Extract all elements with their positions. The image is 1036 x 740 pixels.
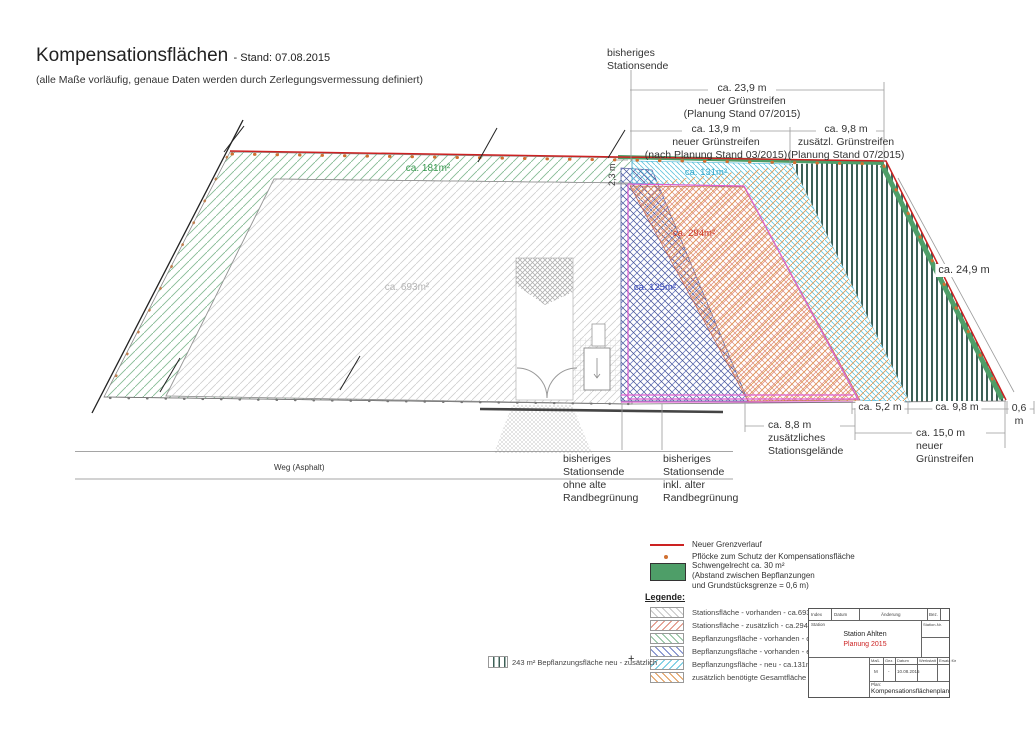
- tb-plan-label: Plan:: [871, 682, 881, 687]
- legend-item: Stationsfläche - vorhanden - ca.693m²: [692, 608, 819, 618]
- dim-9-8-bottom: ca. 9,8 m: [932, 401, 981, 414]
- dim-15-0: ca. 15,0 m neuer Grünstreifen: [916, 427, 974, 466]
- tb-header-bez: Bez.: [929, 612, 938, 617]
- label-station-end-top: bisheriges Stationsende: [607, 47, 668, 73]
- area-label-693: ca. 693m²: [385, 281, 429, 294]
- tb-row-value-datum: 10.08.2015: [897, 669, 920, 674]
- compensation-plan-page: Kompensationsflächen - Stand: 07.08.2015…: [0, 0, 1036, 740]
- legend-swatch-blue-hatch: [650, 646, 684, 657]
- tb-row-header-mass: Maß.: [871, 658, 880, 663]
- area-label-181: ca. 181m²: [406, 162, 450, 175]
- legend-schwengelrecht-label: Schwengelrecht ca. 30 m² (Abstand zwisch…: [692, 561, 815, 591]
- dim-13-9: ca. 13,9 m neuer Grünstreifen (nach Plan…: [645, 123, 787, 162]
- dim-9-8-top: ca. 9,8 m zusätzl. Grünstreifen (Planung…: [788, 123, 905, 162]
- legend-swatch-orange-hatch: [650, 672, 684, 683]
- tb-station-nr-label: Station-Nr.: [923, 622, 942, 627]
- area-label-294: ca. 294m²: [673, 227, 715, 240]
- legend-item: Bepflanzungsfläche - neu - ca.131m²: [692, 660, 815, 670]
- peg-dot-icon: [664, 555, 668, 559]
- legend-swatch-green-hatch: [650, 633, 684, 644]
- gravel-apron: [494, 405, 592, 453]
- tb-row-header-werkstatt: Werkstatt: [919, 658, 936, 663]
- dim-24-9: ca. 24,9 m: [935, 264, 992, 277]
- side-note-label: 243 m² Bepflanzungsfläche neu - zusätzli…: [512, 658, 657, 668]
- area-label-131: ca. 131m²: [685, 166, 727, 179]
- dim-0-6: 0,6 m: [1009, 402, 1030, 428]
- legend-item: Stationsfläche - zusätzlich - ca.294m²: [692, 621, 817, 631]
- label-weg: Weg (Asphalt): [274, 461, 325, 474]
- legend-swatch-red-hatch: [650, 620, 684, 631]
- tb-planning: Planung 2015: [809, 641, 921, 648]
- legend-grenzverlauf-label: Neuer Grenzverlauf: [692, 540, 762, 550]
- legend-heading: Legende:: [645, 591, 685, 604]
- dim-23-9: ca. 23,9 m neuer Grünstreifen (Planung S…: [684, 82, 801, 121]
- legend-swatch-gray-hatch: [650, 607, 684, 618]
- tb-station-name: Station Ahlten: [809, 631, 921, 638]
- page-title: Kompensationsflächen - Stand: 07.08.2015: [36, 44, 330, 70]
- tb-header-aenderung: Änderung: [881, 612, 901, 617]
- dim-2-3: 2,3 m: [606, 163, 619, 186]
- plus-sign: +: [628, 653, 634, 666]
- tb-header-index: Index: [811, 612, 822, 617]
- page-title-stand: - Stand: 07.08.2015: [234, 52, 331, 64]
- label-station-end-left: bisheriges Stationsende ohne alte Randbe…: [563, 453, 638, 505]
- tb-row-header-ersatz: Ersatz für: [939, 658, 956, 663]
- tb-row-header-gez: Gez.: [885, 658, 893, 663]
- legend-new-boundary-line-sample: [650, 544, 684, 546]
- side-note-swatch: [488, 656, 508, 668]
- label-station-end-right: bisheriges Stationsende inkl. alter Rand…: [663, 453, 738, 505]
- dim-8-8: ca. 8,8 m zusätzliches Stationsgelände: [768, 419, 843, 458]
- area-label-125: ca. 125m²: [634, 281, 676, 294]
- page-title-text: Kompensationsflächen: [36, 45, 228, 66]
- tb-row-value-mass: M: [874, 669, 878, 674]
- tb-row-header-datum: Datum: [897, 658, 909, 663]
- title-block: Index Datum Änderung Bez. Station Statio…: [808, 608, 950, 698]
- tb-header-datum: Datum: [834, 612, 847, 617]
- tb-station-label: Station: [811, 622, 825, 627]
- page-subtitle: (alle Maße vorläufig, genaue Daten werde…: [36, 74, 423, 87]
- tb-plan-name: Kompensationsflächenplan: [871, 688, 949, 695]
- legend-schwengelrecht-swatch: [650, 563, 686, 581]
- dim-5-2: ca. 5,2 m: [855, 401, 904, 414]
- tb-row-value-gez: -: [888, 669, 890, 674]
